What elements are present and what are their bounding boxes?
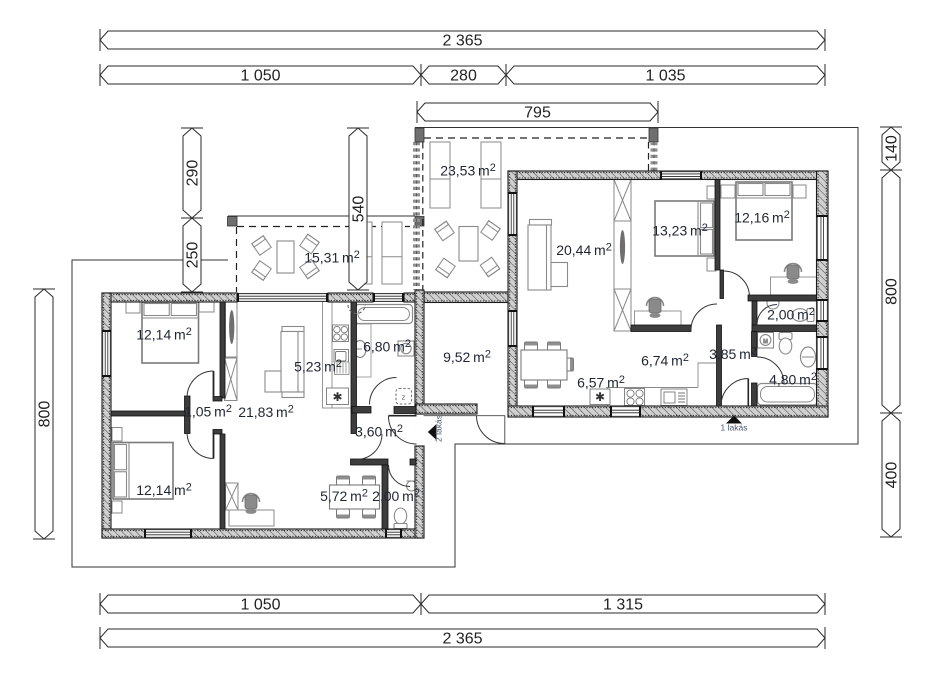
svg-text:140: 140 bbox=[884, 135, 901, 162]
svg-text:2 lakás: 2 lakás bbox=[434, 415, 444, 442]
svg-text:M: M bbox=[763, 339, 768, 345]
svg-text:5,72 m2: 5,72 m2 bbox=[320, 488, 368, 505]
svg-text:12,14 m2: 12,14 m2 bbox=[136, 482, 192, 499]
svg-text:1 035: 1 035 bbox=[645, 68, 685, 85]
svg-text:250: 250 bbox=[185, 242, 202, 269]
svg-text:4,80 m2: 4,80 m2 bbox=[769, 371, 817, 388]
svg-text:1 315: 1 315 bbox=[603, 597, 643, 614]
svg-text:2,00 m2: 2,00 m2 bbox=[372, 488, 420, 505]
svg-text:6,80 m2: 6,80 m2 bbox=[363, 338, 411, 355]
svg-text:3,60 m2: 3,60 m2 bbox=[355, 423, 403, 440]
svg-text:12,14 m2: 12,14 m2 bbox=[136, 326, 192, 343]
svg-text:795: 795 bbox=[524, 105, 551, 122]
svg-text:6,57 m2: 6,57 m2 bbox=[577, 374, 625, 391]
svg-text:2,00 m2: 2,00 m2 bbox=[767, 306, 815, 323]
svg-text:13,23 m2: 13,23 m2 bbox=[652, 222, 708, 239]
svg-text:✱: ✱ bbox=[332, 390, 342, 404]
svg-text:✱: ✱ bbox=[595, 390, 605, 404]
svg-text:540: 540 bbox=[351, 196, 368, 223]
svg-text:1,05 m2: 1,05 m2 bbox=[184, 403, 232, 420]
svg-text:z: z bbox=[402, 395, 406, 402]
svg-text:23,53 m2: 23,53 m2 bbox=[440, 162, 496, 179]
svg-text:1 050: 1 050 bbox=[240, 68, 280, 85]
svg-text:2 365: 2 365 bbox=[442, 631, 482, 648]
svg-text:1 050: 1 050 bbox=[240, 597, 280, 614]
svg-text:20,44 m2: 20,44 m2 bbox=[556, 242, 612, 259]
svg-text:2 365: 2 365 bbox=[442, 33, 482, 50]
svg-text:800: 800 bbox=[884, 278, 901, 305]
svg-text:3,85 m2: 3,85 m2 bbox=[709, 346, 757, 363]
svg-text:15,31 m2: 15,31 m2 bbox=[304, 249, 360, 266]
svg-text:1 lakás: 1 lakás bbox=[721, 423, 748, 433]
svg-text:6,74 m2: 6,74 m2 bbox=[641, 352, 689, 369]
svg-text:9,52 m2: 9,52 m2 bbox=[443, 349, 491, 366]
svg-text:280: 280 bbox=[450, 68, 477, 85]
svg-text:12,16 m2: 12,16 m2 bbox=[734, 209, 790, 226]
svg-text:5,23 m2: 5,23 m2 bbox=[294, 358, 342, 375]
svg-text:400: 400 bbox=[884, 462, 901, 489]
svg-text:21,83 m2: 21,83 m2 bbox=[238, 404, 294, 421]
svg-text:800: 800 bbox=[37, 401, 54, 428]
svg-text:290: 290 bbox=[185, 160, 202, 187]
